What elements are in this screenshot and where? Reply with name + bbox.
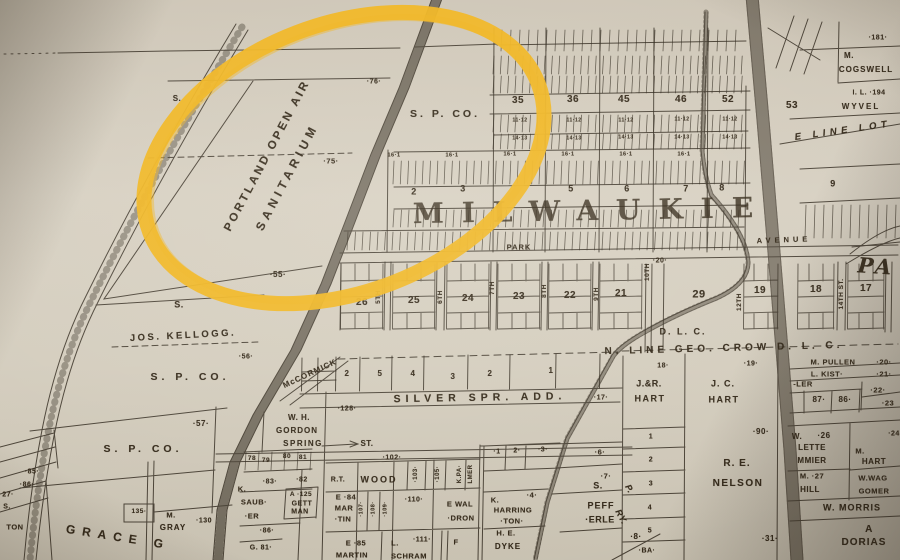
map-label: DYKE (495, 543, 521, 551)
map-label: ·108· (371, 501, 377, 516)
map-label: ·1 (493, 449, 500, 456)
map-label: PARK (507, 243, 532, 251)
map-label: MMIER (797, 457, 826, 465)
map-label: HARRING (494, 506, 533, 514)
map-label: ·TON· (500, 517, 523, 525)
map-label: M. ·27 (800, 472, 824, 480)
map-label: RY. (613, 508, 628, 526)
map-label: 135· (131, 509, 146, 516)
map-label: GETT (292, 501, 313, 508)
map-label: PEFF (587, 502, 614, 511)
map-label: 14·13 (618, 136, 633, 141)
map-label: ·90· (753, 428, 769, 436)
map-label: P. (623, 483, 635, 495)
map-label: ·55· (270, 271, 286, 279)
map-label: R.T. (331, 477, 345, 484)
map-label: 25 (408, 296, 420, 306)
map-label: 16·1 (561, 152, 574, 158)
map-label: 10TH (645, 263, 652, 281)
map-label: PA (857, 254, 895, 277)
map-canvas: Historic plat map of Milwaukie — Portlan… (0, 0, 900, 560)
map-label: COGSWELL (839, 66, 893, 74)
map-label: 11·12 (512, 119, 527, 124)
map-label: ·8· (630, 533, 641, 541)
map-label: 12TH (737, 293, 744, 311)
map-label-layer: PORTLAND OPEN AIRSANITARIUMS. P. CO.S. P… (0, 0, 900, 560)
map-label: -LER (793, 380, 813, 388)
map-label: ·75· (323, 157, 338, 165)
map-label: ·7· (601, 472, 612, 480)
map-label: 11·12 (722, 118, 737, 123)
map-label: HART (635, 395, 666, 404)
map-label: 80 (283, 454, 291, 461)
map-label: 2 (649, 457, 653, 464)
map-label: ·19· (744, 361, 758, 368)
map-label: LMER (468, 465, 474, 484)
map-label: M. (844, 52, 854, 60)
map-label: 26 (356, 298, 368, 308)
map-label: 86· (838, 396, 851, 404)
map-label: 3 (451, 373, 456, 381)
map-label: 4 (411, 370, 416, 378)
map-label: W. H. (288, 414, 310, 422)
map-label: SCHRAM (391, 552, 427, 560)
map-label: ·130 (196, 518, 212, 525)
map-label: 27· (2, 492, 14, 499)
map-label: ·105· (435, 466, 441, 483)
map-label: 46 (675, 95, 687, 105)
map-label: ·181· (869, 35, 888, 42)
map-label: ·76· (367, 79, 381, 86)
map-label: MARTIN (336, 551, 368, 559)
map-label: ·56· (239, 354, 253, 361)
map-label: 8TH (542, 284, 549, 298)
map-label: 11·12 (618, 119, 633, 124)
map-label: ·BA· (639, 548, 656, 555)
map-label: 18 (810, 285, 822, 295)
map-label: ·107· (359, 501, 365, 516)
map-label: 52 (722, 95, 734, 105)
map-label: DORIAS (842, 538, 887, 548)
map-label: W. (792, 433, 802, 441)
map-label: S. P. CO. (104, 444, 183, 455)
map-label: ·83· (263, 479, 277, 486)
map-label: ·DRON (447, 514, 474, 522)
map-label: 9 (830, 180, 836, 189)
map-label: ·6· (595, 448, 606, 456)
map-label: 79 (262, 458, 270, 465)
map-label: 16·1 (387, 153, 400, 159)
map-label: ·20· (876, 358, 891, 366)
map-label: 5 (378, 370, 383, 378)
map-label: 16·1 (503, 152, 516, 158)
map-label: 78 (248, 456, 256, 463)
map-label: E ·85 (346, 539, 366, 547)
map-label: 24 (462, 294, 474, 304)
map-label: S. (173, 95, 182, 103)
map-label: R. E. (723, 459, 750, 469)
map-label: 21 (615, 289, 627, 299)
map-label: HART (862, 458, 886, 466)
map-label: M. PULLEN (811, 358, 856, 366)
map-label: 3 (460, 185, 466, 194)
map-label: 17 (860, 284, 872, 294)
map-label: 16·1 (445, 153, 458, 159)
map-label: E LINE LOT (794, 120, 892, 143)
map-label: W. MORRIS (823, 504, 881, 513)
map-label: ·22· (870, 386, 885, 394)
map-label: 81 (299, 455, 307, 462)
map-label: 5 (568, 185, 574, 194)
map-label: 1 (549, 367, 554, 375)
map-label: 36 (567, 95, 579, 105)
map-label: GRACE G (65, 523, 171, 551)
map-label: ·111· (413, 537, 431, 544)
map-label: ·ERLE (585, 516, 615, 525)
map-label: L. KIST· (811, 370, 843, 378)
map-label: ·109· (383, 501, 389, 516)
map-label: 16·1 (619, 152, 632, 158)
map-label: 2 (345, 370, 350, 378)
map-label: ·57· (193, 420, 209, 428)
map-label: ·TIN (335, 515, 352, 523)
map-label: GRAY (160, 524, 186, 532)
map-label: 8 (719, 184, 725, 193)
milwaukie-label: MILWAUKIE (413, 194, 772, 228)
map-label: N. LINE GEO. CROW D. L. C. (604, 341, 843, 357)
map-label: 6TH (438, 290, 445, 304)
map-label: 14·13 (566, 137, 581, 142)
map-label: 14·13 (722, 136, 737, 141)
map-label: 23 (513, 292, 525, 302)
map-label: SPRING (283, 440, 323, 448)
map-label: 11·12 (674, 118, 689, 123)
map-label: ·103· (413, 466, 419, 483)
map-label: ·17· (594, 395, 608, 402)
map-label: J.&R. (636, 380, 662, 389)
map-label: ·ER (245, 512, 259, 520)
map-label: 22 (564, 291, 576, 301)
map-label: D. L. C. (660, 328, 707, 337)
sanitarium-label: SANITARIUM (254, 121, 321, 232)
map-label: K. (491, 496, 500, 504)
map-label: 45 (618, 95, 630, 105)
map-label: TON (6, 523, 23, 531)
map-label: 14·13 (512, 137, 527, 142)
map-label: 9TH (594, 287, 601, 301)
map-label: ·110· (405, 497, 423, 504)
map-label: L. (391, 539, 399, 547)
map-label: H. E. (496, 529, 515, 537)
map-label: ·24 (888, 431, 900, 438)
map-label: 2· (513, 448, 520, 455)
map-label: S. (174, 301, 184, 310)
map-label: ·85· (25, 469, 39, 476)
map-label: 35 (512, 96, 524, 106)
map-label: 87· (812, 396, 825, 404)
map-label: A (865, 525, 873, 535)
map-label: 53 (786, 101, 798, 111)
map-label: ·21· (876, 370, 891, 378)
map-label: S. P. CO. (151, 372, 230, 383)
map-label: GOMER (859, 487, 890, 495)
map-label: ·86· (260, 528, 274, 535)
map-label: 1 (649, 434, 653, 441)
map-label: 3 (649, 481, 653, 488)
map-label: ·20· (653, 258, 667, 265)
map-label: SAUB· (241, 498, 267, 506)
map-label: E WAL (447, 500, 473, 508)
map-label: MAN (291, 509, 308, 516)
map-label: ·102· (383, 455, 402, 462)
map-label: McCORMICK (282, 358, 338, 390)
map-label: M. (166, 511, 175, 519)
map-label: SILVER SPR. ADD. (394, 391, 567, 405)
map-label: 11·12 (566, 119, 581, 124)
map-label: ST. (360, 440, 373, 448)
map-label: 5TH (376, 290, 383, 304)
map-label: ·26 (817, 432, 830, 440)
map-label: ·3· (538, 447, 548, 454)
map-label: 7TH (490, 281, 497, 295)
map-label: A ·125 (290, 492, 312, 499)
map-label: 29 (692, 290, 705, 301)
map-label: F (453, 538, 458, 546)
map-label: S. (593, 482, 603, 491)
map-label: J. C. (711, 380, 735, 389)
map-label: 2 (411, 188, 417, 197)
map-label: 18· (657, 363, 669, 370)
map-label: MAR (335, 504, 354, 512)
map-label: W.WAG (858, 474, 887, 482)
map-label: HART (709, 396, 740, 405)
map-label: 4 (648, 505, 652, 512)
map-label: GORDON (276, 427, 318, 435)
map-label: I. L. ·194 (852, 90, 885, 97)
map-label: S. P. CO. (410, 109, 480, 120)
map-label: ·4· (527, 491, 538, 499)
map-label: S. (3, 504, 11, 511)
map-label: JOS. KELLOGG. (130, 328, 237, 343)
map-label: 2 (488, 370, 493, 378)
map-label: K.PA· (457, 465, 463, 483)
map-label: ·86· (20, 482, 34, 489)
map-label: 7 (683, 185, 689, 194)
map-label: ·23 (882, 399, 894, 407)
map-label: 14TH ST. (839, 278, 846, 309)
map-label: 5 (648, 528, 652, 535)
map-label: 16·1 (677, 152, 690, 158)
map-label: NELSON (713, 479, 764, 489)
map-label: HILL (800, 486, 820, 494)
map-label: M. (855, 447, 864, 455)
map-label: 6 (624, 185, 630, 194)
map-label: WOOD (361, 476, 398, 485)
map-label: LETTE (798, 444, 826, 452)
map-label: 14·13 (674, 136, 689, 141)
map-label: ·128· (338, 406, 357, 413)
map-label: K. (238, 485, 247, 493)
map-label: AVENUE (757, 235, 812, 244)
map-label: E ·84 (336, 493, 356, 501)
map-label: WYVEL (842, 103, 880, 111)
map-label: G. 81· (250, 545, 272, 552)
map-label: 19 (754, 286, 766, 296)
map-label: ·82 (296, 477, 308, 484)
map-label: ·31· (762, 535, 778, 543)
